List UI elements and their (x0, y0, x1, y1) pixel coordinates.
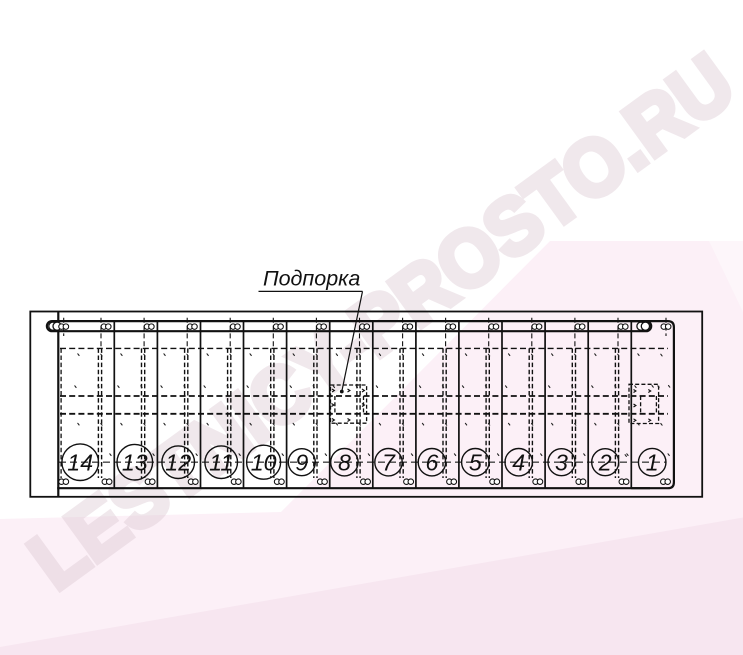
svg-text:14: 14 (67, 450, 93, 476)
svg-text:5: 5 (469, 450, 482, 476)
svg-text:6: 6 (425, 450, 438, 476)
svg-text:1: 1 (646, 450, 659, 476)
svg-text:3: 3 (555, 450, 568, 476)
svg-text:12: 12 (165, 450, 191, 476)
svg-text:2: 2 (598, 450, 612, 476)
svg-text:8: 8 (338, 450, 351, 476)
svg-text:7: 7 (382, 450, 396, 476)
svg-text:11: 11 (209, 450, 233, 476)
svg-text:4: 4 (512, 450, 525, 476)
svg-text:9: 9 (295, 450, 308, 476)
svg-text:Подпорка: Подпорка (263, 267, 360, 291)
svg-text:13: 13 (122, 450, 148, 476)
svg-text:10: 10 (251, 450, 277, 476)
